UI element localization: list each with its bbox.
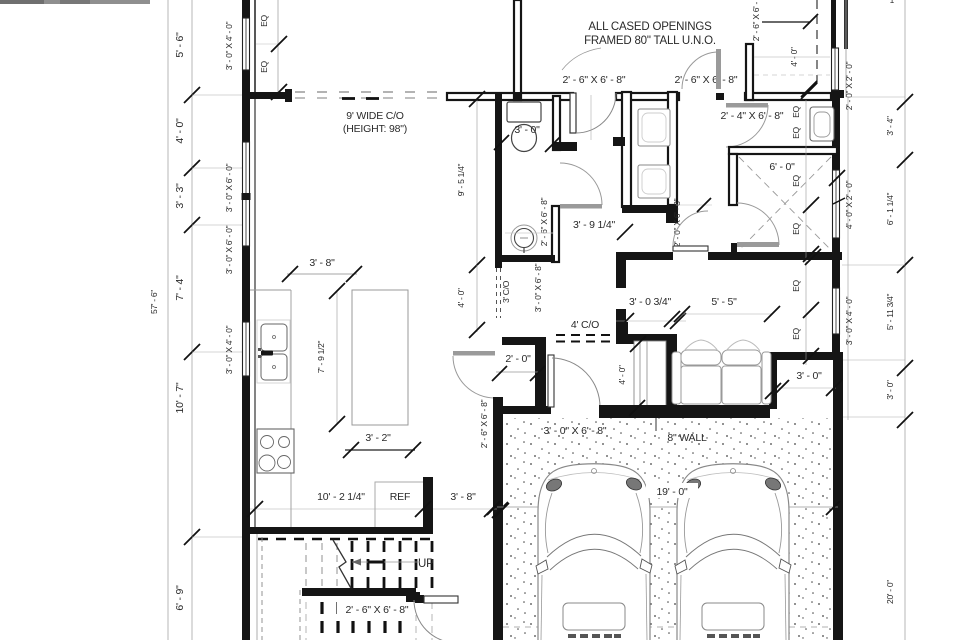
svg-text:2' - 6" X 6' - 8": 2' - 6" X 6' - 8" (751, 0, 761, 41)
svg-text:20' - 0": 20' - 0" (885, 580, 895, 604)
svg-text:4' - 0": 4' - 0" (456, 288, 466, 308)
svg-text:5' - 5": 5' - 5" (711, 296, 737, 308)
svg-text:EQ: EQ (791, 327, 801, 339)
svg-text:3' - 0": 3' - 0" (885, 380, 895, 400)
svg-text:10' - 2 1/4": 10' - 2 1/4" (317, 491, 365, 503)
svg-text:3' - 2": 3' - 2" (365, 432, 391, 444)
svg-text:1: 1 (890, 0, 895, 5)
svg-text:2' - 6" X 6' - 8": 2' - 6" X 6' - 8" (479, 399, 489, 448)
svg-text:3' - 0" X 4' - 0": 3' - 0" X 4' - 0" (224, 325, 234, 374)
svg-text:8" WALL: 8" WALL (667, 432, 707, 444)
svg-text:7' - 9 1/2": 7' - 9 1/2" (316, 340, 326, 373)
svg-text:3' C/O: 3' C/O (501, 280, 511, 303)
svg-text:3' - 0": 3' - 0" (796, 370, 822, 382)
svg-text:3' - 0" X 6' - 0": 3' - 0" X 6' - 0" (224, 225, 234, 274)
svg-text:EQ: EQ (791, 174, 801, 186)
svg-text:2' - 0": 2' - 0" (505, 353, 531, 365)
svg-text:4' - 0" X 2' - 0": 4' - 0" X 2' - 0" (844, 180, 854, 229)
svg-text:5' - 11 3/4": 5' - 11 3/4" (885, 294, 895, 331)
svg-text:ALL CASED OPENINGS: ALL CASED OPENINGS (588, 21, 712, 33)
svg-text:EQ: EQ (259, 14, 269, 26)
svg-text:EQ: EQ (791, 279, 801, 291)
svg-text:3' - 3": 3' - 3" (174, 183, 186, 209)
svg-text:2' - 4" X 6' - 8": 2' - 4" X 6' - 8" (721, 110, 784, 122)
svg-text:2' - 6" X 6' - 8": 2' - 6" X 6' - 8" (346, 604, 409, 616)
svg-text:3' - 0" X 4' - 0": 3' - 0" X 4' - 0" (224, 21, 234, 70)
svg-text:3' - 4": 3' - 4" (885, 116, 895, 136)
svg-text:6' - 1 1/4": 6' - 1 1/4" (885, 192, 895, 225)
svg-text:EQ: EQ (259, 60, 269, 72)
svg-text:EQ: EQ (791, 126, 801, 138)
svg-text:57' - 6": 57' - 6" (149, 290, 159, 314)
svg-text:FRAMED 80" TALL U.N.O.: FRAMED 80" TALL U.N.O. (584, 35, 716, 47)
svg-text:3' - 8": 3' - 8" (450, 491, 476, 503)
svg-text:UP: UP (418, 558, 434, 570)
svg-text:3' - 0": 3' - 0" (514, 124, 540, 136)
svg-text:4' - 0": 4' - 0" (174, 118, 186, 144)
svg-text:2' - 6" X 6' - 8": 2' - 6" X 6' - 8" (563, 74, 626, 86)
svg-text:5' - 6": 5' - 6" (174, 32, 186, 58)
svg-text:EQ: EQ (791, 222, 801, 234)
svg-text:EQ: EQ (791, 105, 801, 117)
svg-text:6' - 0": 6' - 0" (769, 161, 795, 173)
svg-text:6' - 9": 6' - 9" (174, 585, 186, 611)
svg-text:(HEIGHT: 98"): (HEIGHT: 98") (343, 123, 407, 135)
svg-text:3' - 0" X 4' - 0": 3' - 0" X 4' - 0" (844, 296, 854, 345)
svg-text:10' - 7": 10' - 7" (174, 382, 186, 413)
svg-text:4' C/O: 4' C/O (571, 319, 599, 331)
svg-text:3' - 0" X 6' - 8": 3' - 0" X 6' - 8" (544, 425, 607, 437)
svg-text:3' - 0" X 6' - 8": 3' - 0" X 6' - 8" (533, 263, 543, 312)
svg-text:2' - 0" X 2' - 0": 2' - 0" X 2' - 0" (844, 61, 854, 110)
svg-text:7' - 4": 7' - 4" (174, 275, 186, 301)
svg-text:3' - 9 1/4": 3' - 9 1/4" (573, 219, 616, 231)
svg-text:3' - 8": 3' - 8" (309, 257, 335, 269)
svg-text:4' - 0": 4' - 0" (617, 365, 627, 385)
svg-text:3' - 0" X 6' - 0": 3' - 0" X 6' - 0" (224, 163, 234, 212)
svg-text:REF: REF (390, 491, 410, 503)
svg-text:19' - 0": 19' - 0" (657, 486, 688, 498)
svg-text:2' - 6" X 6' - 8": 2' - 6" X 6' - 8" (539, 197, 549, 246)
svg-text:3' - 0 3/4": 3' - 0 3/4" (629, 296, 672, 308)
svg-text:9' - 5 1/4": 9' - 5 1/4" (456, 163, 466, 196)
svg-text:9' WIDE C/O: 9' WIDE C/O (346, 110, 404, 122)
